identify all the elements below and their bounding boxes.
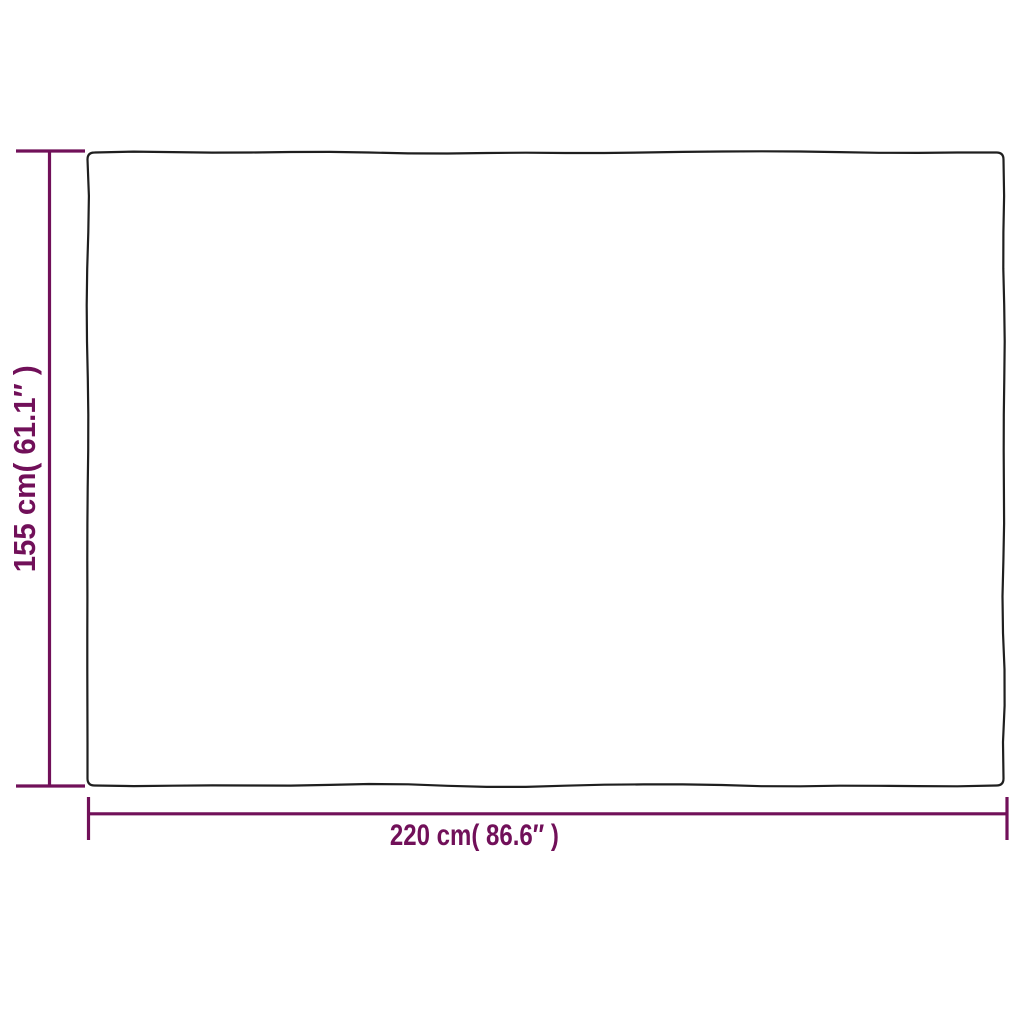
svg-text:220 cm( 86.6″ ): 220 cm( 86.6″ ) xyxy=(390,819,559,852)
svg-text:155 cm( 61.1″ ): 155 cm( 61.1″ ) xyxy=(8,365,42,572)
